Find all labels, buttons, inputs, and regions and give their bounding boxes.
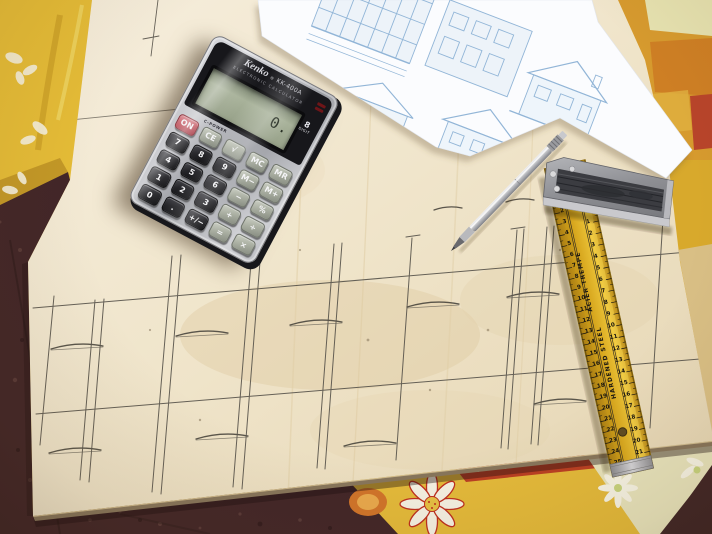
display-value: 0. [266, 113, 297, 141]
photo-scene: 1234567891011121314151617181920212223242… [0, 0, 712, 534]
scene-graphics: 1234567891011121314151617181920212223242… [0, 0, 712, 534]
registered-mark: ® [269, 75, 275, 81]
digit-badge: 8 DIGIT [294, 117, 317, 137]
